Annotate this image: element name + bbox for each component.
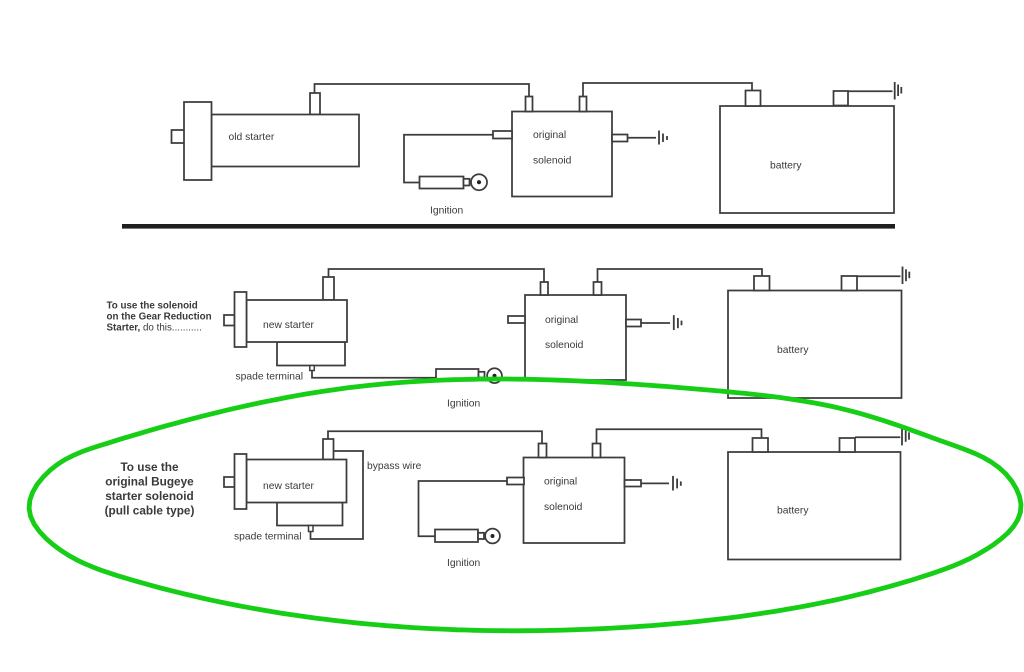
svg-text:To use the solenoid: To use the solenoid xyxy=(107,301,198,312)
svg-text:bypass wire: bypass wire xyxy=(367,461,422,472)
svg-text:battery: battery xyxy=(777,506,809,517)
svg-text:original: original xyxy=(544,477,577,488)
svg-text:new starter: new starter xyxy=(263,481,315,492)
svg-text:original: original xyxy=(533,130,566,141)
svg-text:battery: battery xyxy=(777,345,809,356)
svg-text:solenoid: solenoid xyxy=(533,156,572,167)
svg-text:on the Gear Reduction: on the Gear Reduction xyxy=(107,312,212,323)
svg-text:Starter, do this...........: Starter, do this........... xyxy=(107,323,202,334)
svg-text:new starter: new starter xyxy=(263,320,315,331)
svg-text:spade terminal: spade terminal xyxy=(236,372,304,383)
svg-text:Ignition: Ignition xyxy=(447,399,480,410)
svg-text:old starter: old starter xyxy=(229,132,275,143)
svg-text:(pull cable type): (pull cable type) xyxy=(105,504,195,518)
svg-text:battery: battery xyxy=(770,161,802,172)
svg-text:solenoid: solenoid xyxy=(545,340,584,351)
svg-text:original Bugeye: original Bugeye xyxy=(105,475,194,489)
svg-text:Ignition: Ignition xyxy=(430,206,463,217)
svg-text:spade terminal: spade terminal xyxy=(234,532,302,543)
svg-text:starter solenoid: starter solenoid xyxy=(105,489,194,503)
svg-text:Ignition: Ignition xyxy=(447,558,480,569)
svg-text:original: original xyxy=(545,315,578,326)
svg-text:solenoid: solenoid xyxy=(544,502,583,513)
svg-text:To use the: To use the xyxy=(120,460,179,474)
